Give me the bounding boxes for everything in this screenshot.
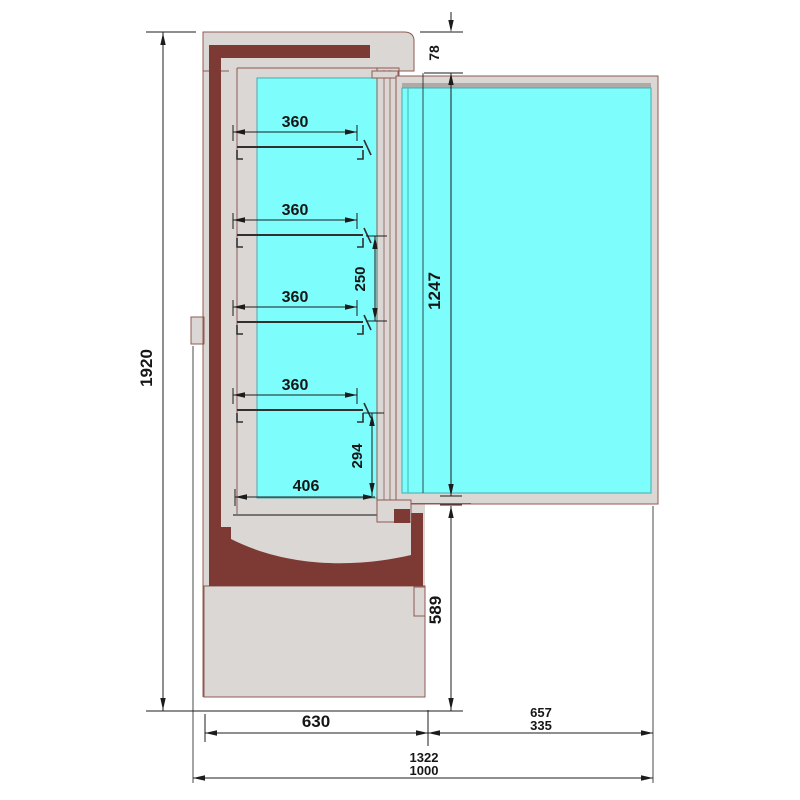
dim-base-depth: 630 <box>205 710 428 746</box>
insulation-back <box>209 45 221 535</box>
dim-overall-height: 1920 <box>137 32 196 711</box>
dim-label: 250 <box>352 266 369 291</box>
arrow-right <box>416 730 428 735</box>
dim-door-projection: 657 335 <box>428 705 653 736</box>
arrow-left <box>193 775 205 780</box>
dim-label: 406 <box>293 478 320 495</box>
arrow-right <box>641 730 653 735</box>
arrow-up <box>160 33 165 45</box>
cabinet-section-svg: 1920 78 1247 589 360 <box>0 0 800 800</box>
technical-drawing: 1920 78 1247 589 360 <box>0 0 800 800</box>
base-vent <box>414 587 425 616</box>
dim-label: 589 <box>426 596 445 624</box>
dim-label: 360 <box>282 377 309 394</box>
open-door <box>372 71 658 523</box>
dim-door-top-offset: 78 <box>420 12 463 85</box>
dim-label: 360 <box>282 114 309 131</box>
door-hinge-bottom-seal <box>394 509 410 523</box>
dim-label-variant-2: 335 <box>530 718 552 733</box>
dim-label: 360 <box>282 202 309 219</box>
arrow-left <box>428 730 440 735</box>
arrow-down <box>448 698 453 710</box>
arrow-right <box>641 775 653 780</box>
door-glass-shadow <box>402 83 651 88</box>
dim-base-front-height: 589 <box>426 505 462 711</box>
arrow-left <box>205 730 217 735</box>
arrow-down <box>160 698 165 710</box>
dim-label: 78 <box>426 45 442 61</box>
dim-label: 360 <box>282 289 309 306</box>
insulation-top <box>209 45 370 58</box>
dim-label: 294 <box>349 443 366 469</box>
wall-spacer-notch <box>191 317 204 344</box>
dim-label: 1920 <box>137 349 156 387</box>
dim-label-variant-2: 1000 <box>410 763 439 778</box>
dim-label: 630 <box>302 712 330 731</box>
arrow-down <box>448 20 453 32</box>
base-box <box>204 586 425 697</box>
dim-label: 1247 <box>425 272 444 310</box>
door-hinge-top <box>372 71 398 78</box>
